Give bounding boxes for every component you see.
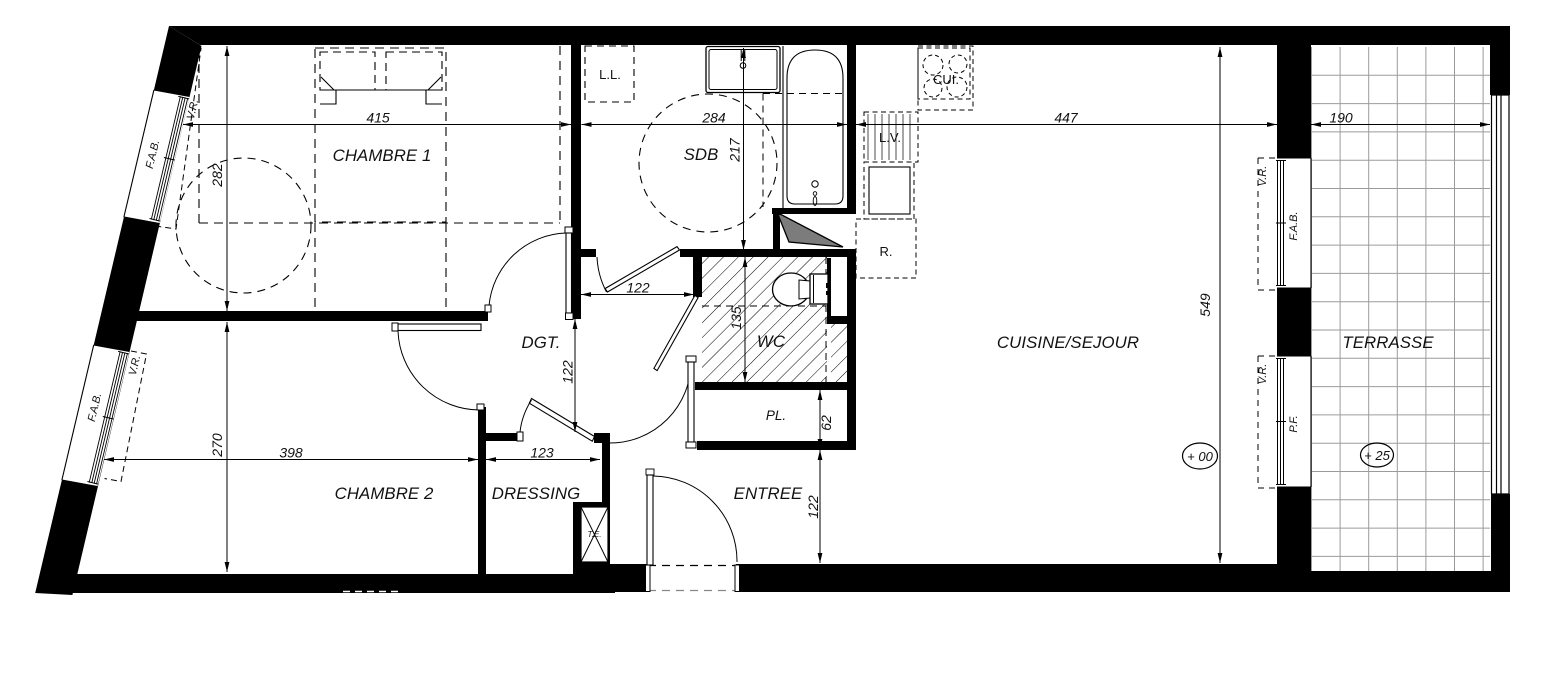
svg-text:62: 62: [818, 415, 834, 431]
svg-text:+ 00: + 00: [1187, 449, 1213, 464]
svg-text:WC: WC: [757, 332, 786, 351]
svg-text:T.E.: T.E.: [588, 530, 602, 539]
svg-text:DGT.: DGT.: [522, 333, 561, 352]
svg-text:CHAMBRE 1: CHAMBRE 1: [333, 146, 432, 165]
svg-text:L.L.: L.L.: [599, 67, 621, 82]
svg-text:398: 398: [279, 444, 303, 460]
svg-text:PL.: PL.: [766, 408, 786, 423]
svg-text:CHAMBRE 2: CHAMBRE 2: [335, 484, 434, 503]
svg-text:CUI.: CUI.: [933, 72, 959, 87]
svg-text:549: 549: [1197, 293, 1213, 317]
svg-text:447: 447: [1054, 109, 1079, 125]
svg-text:+ 25: + 25: [1364, 448, 1390, 463]
svg-text:V.R.: V.R.: [1257, 166, 1269, 187]
svg-text:R.: R.: [880, 244, 893, 259]
svg-text:190: 190: [1329, 109, 1353, 125]
svg-text:282: 282: [209, 163, 225, 188]
svg-text:284: 284: [701, 109, 726, 125]
svg-text:L.V.: L.V.: [879, 130, 901, 145]
svg-text:122: 122: [805, 495, 821, 519]
svg-text:DRESSING: DRESSING: [492, 484, 580, 503]
svg-text:TERRASSE: TERRASSE: [1342, 333, 1434, 352]
svg-text:123: 123: [530, 444, 554, 460]
svg-text:415: 415: [366, 109, 390, 125]
svg-text:135: 135: [728, 306, 744, 330]
svg-text:P.F.: P.F.: [1288, 415, 1300, 432]
svg-text:217: 217: [727, 137, 743, 163]
svg-text:122: 122: [560, 360, 576, 384]
svg-text:CUISINE/SEJOUR: CUISINE/SEJOUR: [997, 333, 1139, 352]
svg-text:V.R.: V.R.: [1257, 364, 1269, 385]
svg-text:270: 270: [209, 433, 225, 458]
svg-text:SDB: SDB: [684, 145, 719, 164]
svg-text:F.A.B.: F.A.B.: [1288, 211, 1300, 240]
svg-text:122: 122: [626, 280, 650, 296]
svg-text:ENTREE: ENTREE: [734, 484, 803, 503]
